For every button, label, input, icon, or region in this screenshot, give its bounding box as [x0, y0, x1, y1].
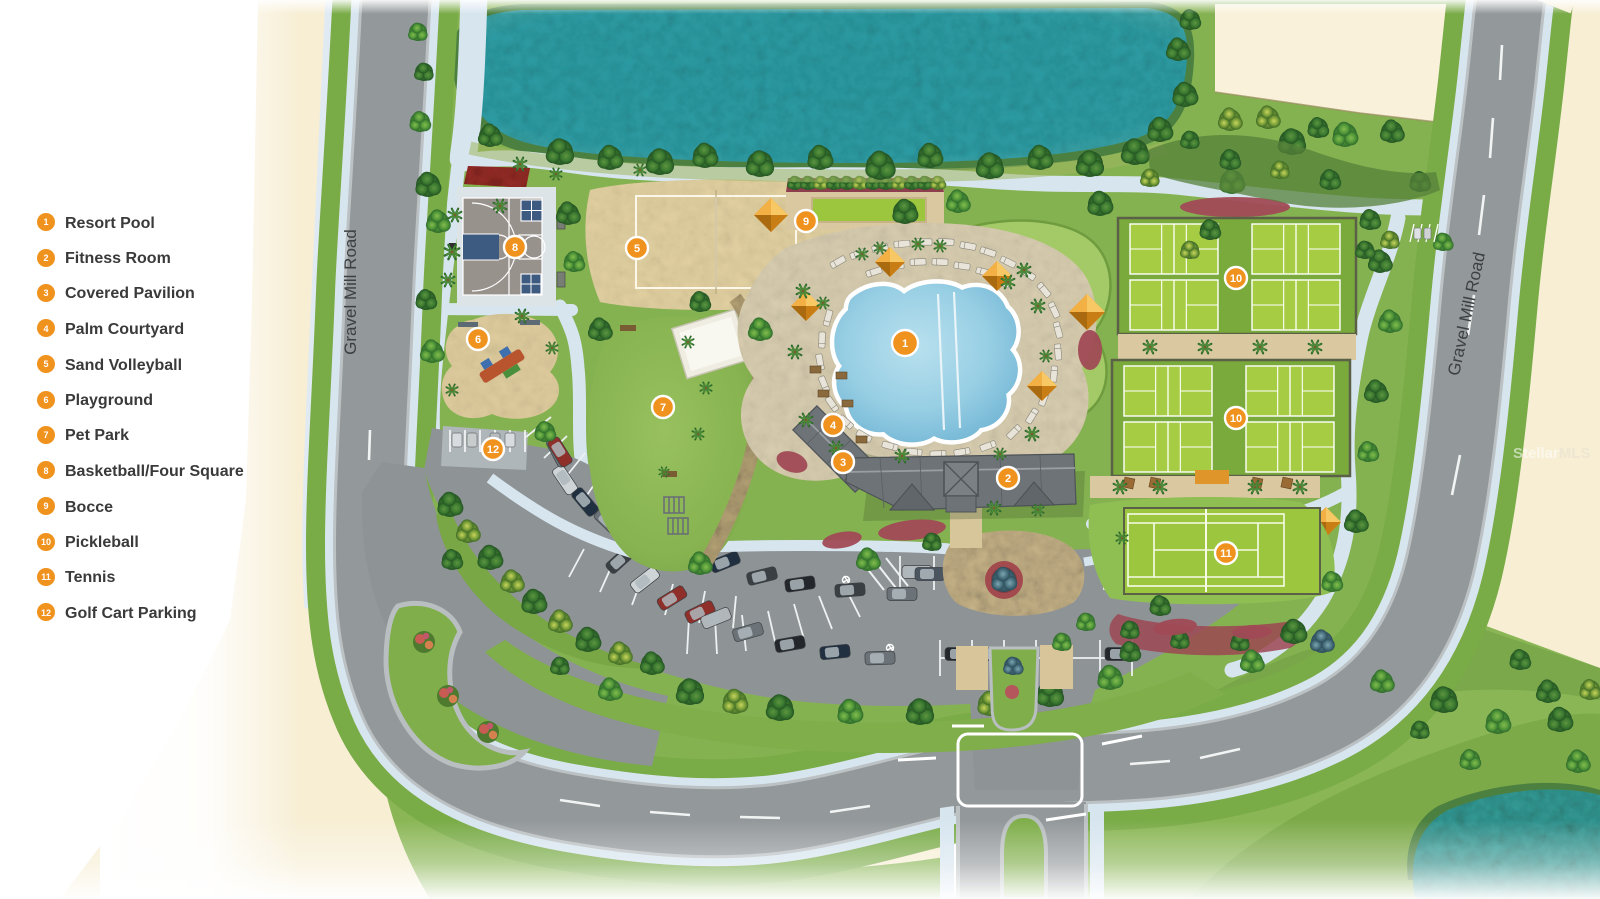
- svg-text:1: 1: [43, 217, 48, 227]
- svg-text:Golf Cart Parking: Golf Cart Parking: [65, 605, 197, 622]
- svg-text:10: 10: [1230, 413, 1242, 425]
- svg-text:9: 9: [803, 216, 809, 228]
- svg-text:12: 12: [41, 608, 51, 618]
- svg-text:12: 12: [487, 444, 499, 456]
- svg-text:11: 11: [1220, 548, 1232, 560]
- svg-text:5: 5: [43, 359, 48, 369]
- svg-text:4: 4: [43, 324, 48, 334]
- svg-text:Covered Pavilion: Covered Pavilion: [65, 285, 195, 302]
- svg-text:Bocce: Bocce: [65, 499, 113, 516]
- svg-text:4: 4: [830, 420, 837, 432]
- svg-text:Playground: Playground: [65, 392, 153, 409]
- svg-text:10: 10: [41, 537, 51, 547]
- svg-text:8: 8: [512, 242, 518, 254]
- svg-text:11: 11: [41, 572, 51, 582]
- svg-text:Pet Park: Pet Park: [65, 427, 129, 444]
- svg-text:Palm Courtyard: Palm Courtyard: [65, 321, 184, 338]
- svg-text:Sand Volleyball: Sand Volleyball: [65, 357, 182, 374]
- svg-text:8: 8: [43, 466, 48, 476]
- svg-text:7: 7: [660, 402, 666, 414]
- svg-text:Gravel Mill Road: Gravel Mill Road: [341, 229, 360, 355]
- svg-text:3: 3: [43, 288, 48, 298]
- svg-text:StellarMLS: StellarMLS: [1513, 445, 1591, 462]
- svg-text:Fitness Room: Fitness Room: [65, 250, 171, 267]
- svg-text:7: 7: [43, 430, 48, 440]
- svg-text:Basketball/Four Square: Basketball/Four Square: [65, 463, 244, 480]
- svg-text:9: 9: [43, 501, 48, 511]
- svg-text:6: 6: [43, 395, 48, 405]
- svg-text:5: 5: [634, 243, 640, 255]
- svg-text:Pickleball: Pickleball: [65, 534, 139, 551]
- svg-text:Tennis: Tennis: [65, 569, 115, 586]
- svg-text:10: 10: [1230, 273, 1242, 285]
- svg-text:2: 2: [43, 253, 48, 263]
- svg-text:6: 6: [475, 334, 481, 346]
- svg-text:3: 3: [840, 457, 846, 469]
- svg-text:2: 2: [1005, 473, 1011, 485]
- svg-text:1: 1: [902, 338, 908, 350]
- svg-text:Resort Pool: Resort Pool: [65, 215, 155, 232]
